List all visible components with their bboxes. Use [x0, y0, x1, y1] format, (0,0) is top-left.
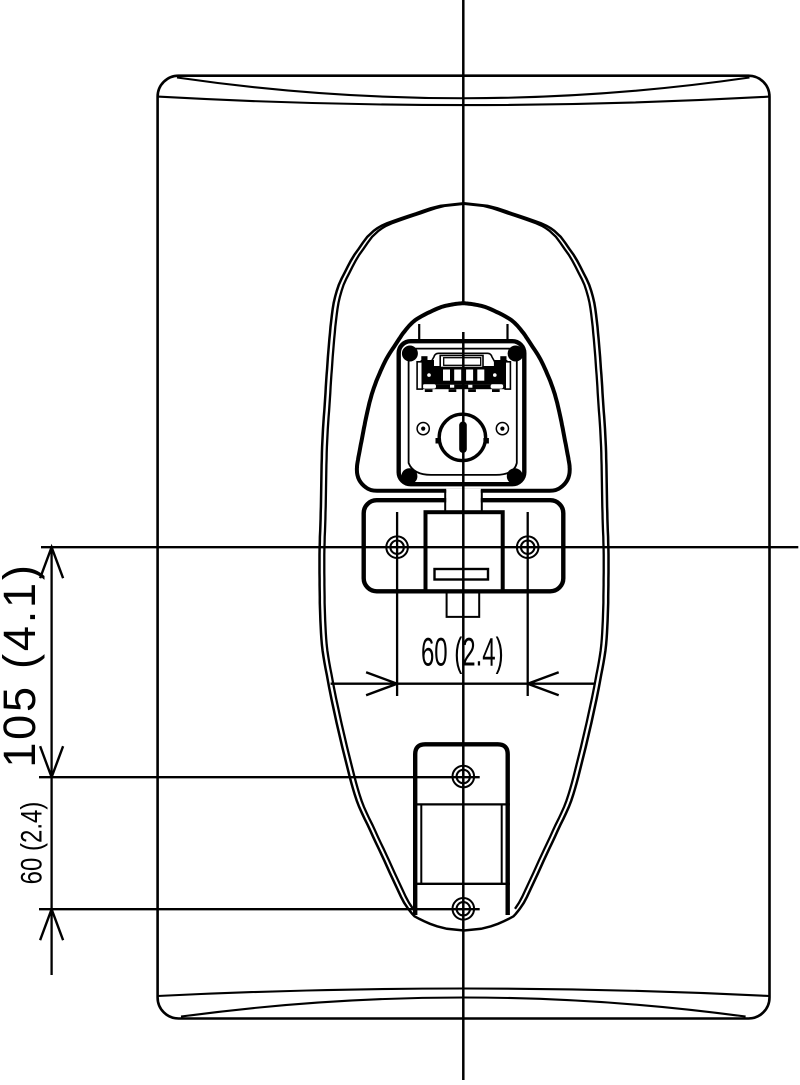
svg-text:105 (4.1): 105 (4.1) [0, 562, 45, 767]
svg-text:60 (2.4): 60 (2.4) [14, 802, 48, 885]
